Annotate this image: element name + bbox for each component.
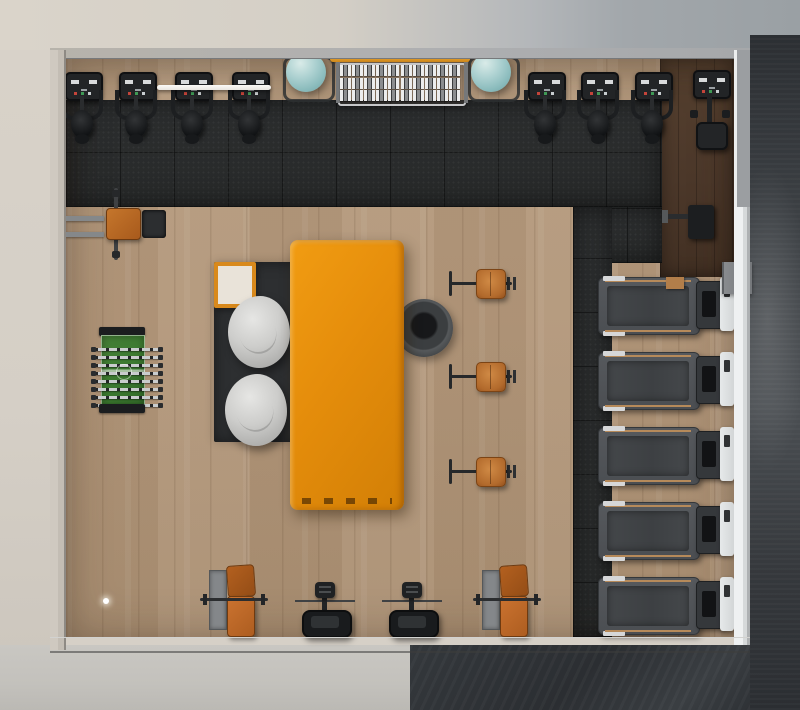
floor-marker-light [103,598,109,604]
outer-concrete-bottom-right [410,645,800,710]
bike-base [696,122,728,150]
treadmill-base-plate [720,577,734,631]
foosball-rod [95,364,159,367]
wall-right-upper [734,50,750,207]
dumbbell [352,65,363,76]
bike-seat [641,110,663,138]
barbell-bench-station [450,269,515,299]
treadmill-feet [603,501,625,506]
spin-bike [227,64,271,142]
white-barbell [157,85,271,90]
dumbbell [437,78,448,89]
upright-exercise-bike [688,62,732,148]
bike-seat [587,110,609,138]
dumbbell [340,65,351,76]
spin-bike [114,64,158,142]
wood-step [666,277,684,289]
dumbbell [364,78,375,89]
treadmill-feet [603,576,625,581]
dumbbell-rack [338,55,462,102]
handlebar [382,600,442,602]
dumbbell [388,65,399,76]
spin-bike [576,64,620,142]
render-canvas [0,0,800,710]
dumbbell [413,65,424,76]
treadmill-bed [598,352,700,410]
barbell-bench-station [450,362,515,392]
treadmill [598,575,734,635]
bike-seat [71,110,93,138]
wall-top-beam [50,48,750,59]
treadmill-feet [603,426,625,431]
outer-floor-top [0,0,800,50]
wall-left [50,50,66,650]
treadmill-feet [603,276,625,281]
ab-trainer-machine [382,578,442,638]
wall-right-lower [734,207,750,645]
outer-floor-bottom-left [0,645,410,710]
handlebar [295,600,355,602]
dumbbell [376,90,387,101]
treadmill [598,500,734,560]
treadmill-deck [607,361,689,401]
bench-seat-pad [227,596,255,637]
dumbbell [413,78,424,89]
bench-backrest-pad [226,564,256,598]
foosball-rod [95,388,159,391]
dumbbell [449,90,460,101]
bike-pedals [690,110,730,118]
wall-monitor [688,205,714,239]
dumbbell [340,90,351,101]
weight-plates [142,210,166,238]
dumbbell [413,90,424,101]
dumbbell [376,65,387,76]
bike-seat [534,110,556,138]
spin-bike [60,64,104,142]
machine-base [389,610,439,638]
outer-concrete-right-panel [750,35,800,710]
treadmill-bed [598,427,700,485]
machine-base [302,610,352,638]
spin-bike [630,64,674,142]
treadmill-deck [607,511,689,551]
bench-press-station [66,188,170,264]
barbell [473,598,541,601]
foosball-rod [95,396,159,399]
foosball-rod [95,348,159,351]
dumbbell [352,78,363,89]
treadmill-bed [598,577,700,635]
bean-bag [225,374,287,446]
treadmill-base-plate [720,502,734,556]
dumbbell [364,65,375,76]
bench-seat-pad [500,596,528,637]
treadmill-deck [607,436,689,476]
leather-pad [476,269,506,299]
dumbbell [340,78,351,89]
dumbbell [449,65,460,76]
bike-seat [238,110,260,138]
dumbbell-grid [340,65,460,101]
foosball-rod [95,372,159,375]
machine-seat [402,582,422,598]
treadmill-base-plate [720,427,734,481]
barbell-bench-station [450,457,515,487]
leather-pad [476,457,506,487]
bench-backrest-pad [499,564,529,598]
spin-bike [170,64,214,142]
spin-bike [523,64,567,142]
treadmill [598,350,734,410]
dumbbell [449,78,460,89]
bike-seat [125,110,147,138]
bench-pad [106,208,141,240]
dumbbell [401,65,412,76]
treadmill-feet [603,351,625,356]
bike-seat [181,110,203,138]
rack-arm [66,216,104,221]
foosball-rod [95,404,159,407]
treadmill-base-plate [720,352,734,406]
bike-console-display [693,70,731,99]
outer-floor-left [0,50,55,650]
dumbbell [425,90,436,101]
bean-bag [228,296,290,368]
foosball-table [97,327,147,413]
treadmill-deck [607,286,689,326]
foosball-rod [95,380,159,383]
treadmill-bed [598,277,700,335]
dumbbell [388,78,399,89]
dumbbell [425,78,436,89]
machine-seat [315,582,335,598]
lounge-table-orange [290,240,404,510]
dumbbell [388,90,399,101]
wall-bottom [50,637,750,653]
rack-arm [66,232,104,237]
dumbbell [352,90,363,101]
dumbbell [376,78,387,89]
foosball-field [101,335,145,407]
treadmill [598,425,734,485]
treadmill-bed [598,502,700,560]
foosball-rod [95,356,159,359]
dumbbell [401,90,412,101]
leather-pad [476,362,506,392]
ab-trainer-machine [295,578,355,638]
dumbbell [401,78,412,89]
dumbbell [437,90,448,101]
barbell [200,598,268,601]
adjustable-bench [478,558,536,638]
treadmill-deck [607,586,689,626]
dumbbell [437,65,448,76]
adjustable-bench [205,558,263,638]
dumbbell [364,90,375,101]
dumbbell [425,65,436,76]
